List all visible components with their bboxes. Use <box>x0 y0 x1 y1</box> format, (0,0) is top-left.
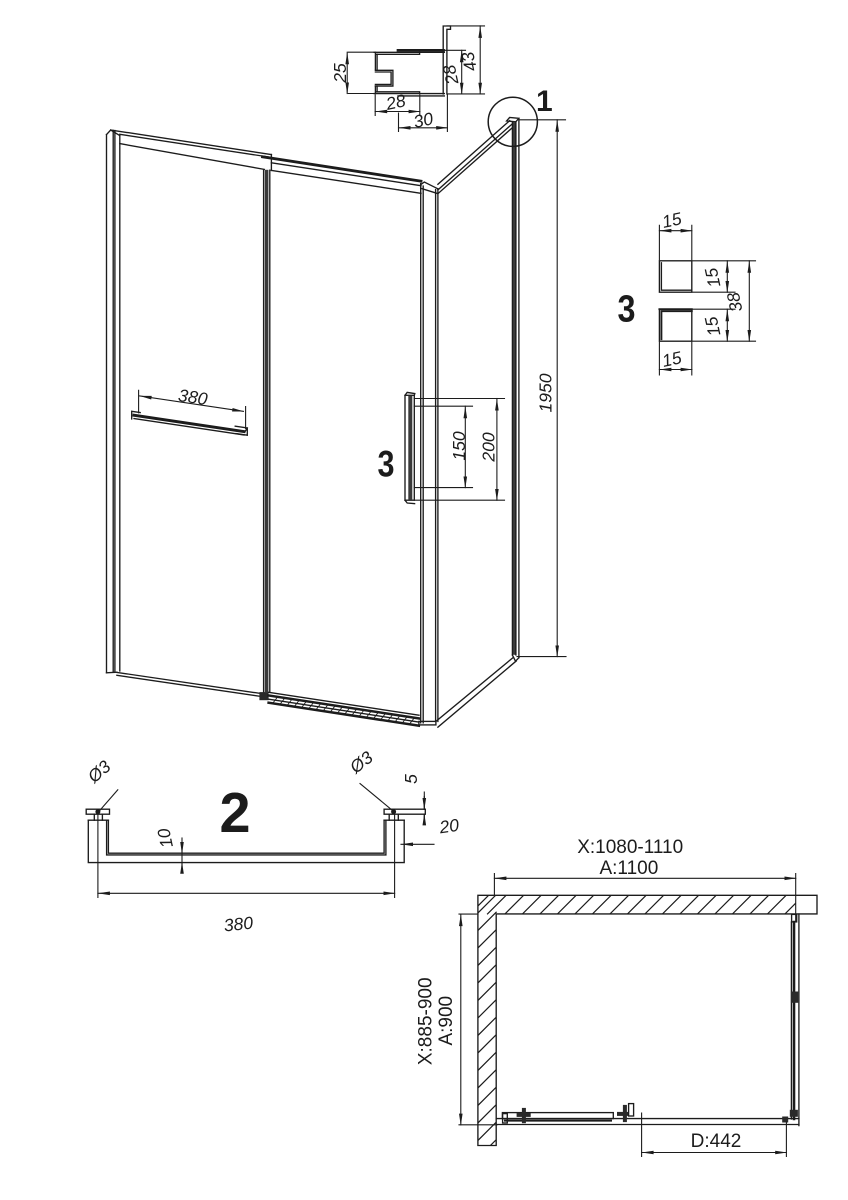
svg-text:Ø3: Ø3 <box>345 747 377 778</box>
svg-text:15: 15 <box>701 266 725 289</box>
svg-text:2: 2 <box>220 781 251 845</box>
svg-text:A:900: A:900 <box>436 996 457 1046</box>
svg-text:10: 10 <box>153 826 177 849</box>
svg-text:380: 380 <box>177 385 209 409</box>
svg-text:X:1080-1110: X:1080-1110 <box>577 837 683 858</box>
svg-text:1: 1 <box>536 85 553 118</box>
svg-text:150: 150 <box>449 431 469 460</box>
svg-text:A:1100: A:1100 <box>599 858 658 879</box>
svg-text:15: 15 <box>660 347 683 371</box>
svg-text:X:885-900: X:885-900 <box>416 977 437 1065</box>
svg-text:20: 20 <box>437 815 460 838</box>
svg-text:1950: 1950 <box>536 373 556 412</box>
svg-text:200: 200 <box>479 432 499 462</box>
svg-text:30: 30 <box>412 108 435 132</box>
svg-text:15: 15 <box>660 208 683 232</box>
svg-text:3: 3 <box>618 289 636 331</box>
svg-text:25: 25 <box>330 63 350 84</box>
svg-text:43: 43 <box>457 50 481 73</box>
svg-text:5: 5 <box>401 774 421 784</box>
svg-text:Ø3: Ø3 <box>83 756 115 787</box>
svg-text:D:442: D:442 <box>691 1131 742 1152</box>
svg-text:38: 38 <box>723 290 747 313</box>
svg-text:3: 3 <box>378 444 395 485</box>
svg-text:380: 380 <box>223 913 254 936</box>
svg-text:15: 15 <box>701 315 725 338</box>
